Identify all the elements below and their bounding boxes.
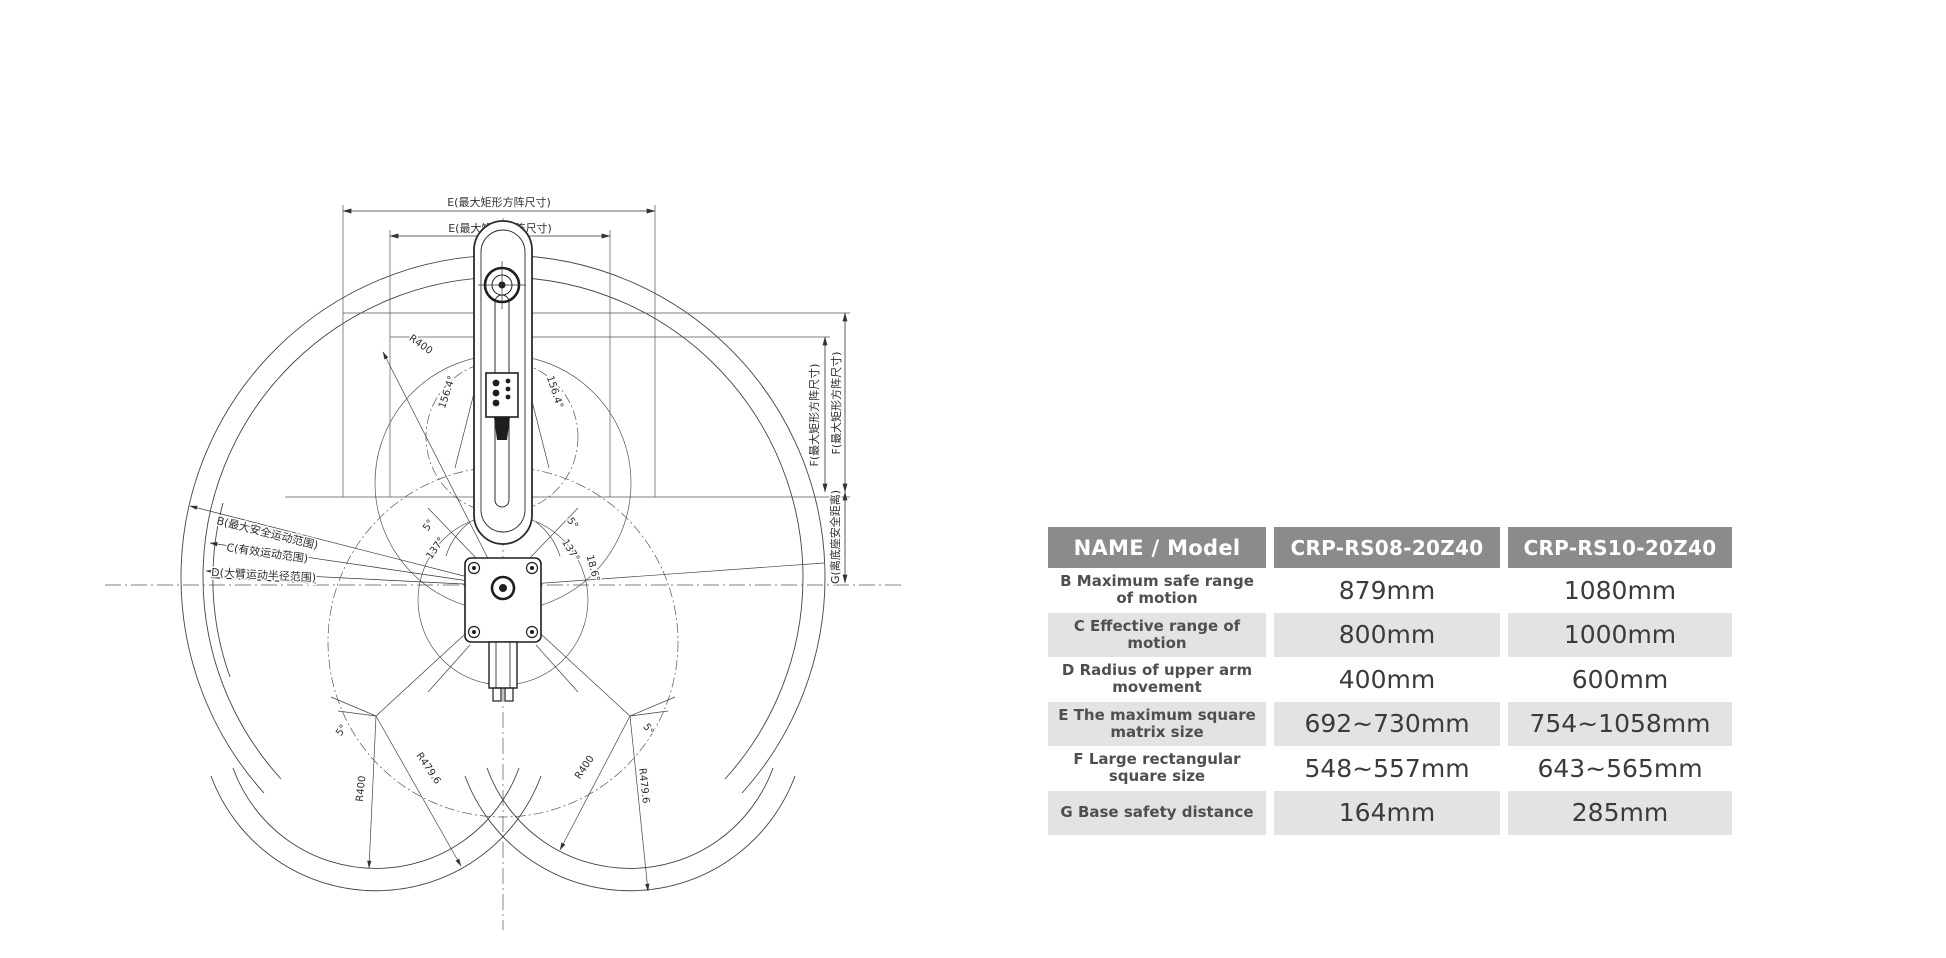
row-f-value1: 548~557mm bbox=[1274, 746, 1500, 791]
dimension-e-outer: E(最大矩形方阵尺寸) bbox=[343, 195, 655, 211]
row-c-value2: 1000mm bbox=[1508, 613, 1732, 658]
angle-left-5-label: 5° bbox=[421, 518, 437, 534]
lobe-right-outer-arc bbox=[465, 776, 795, 891]
row-f-value2: 643~565mm bbox=[1508, 746, 1732, 791]
angle-left-137-label: 137° bbox=[425, 536, 448, 562]
row-b-value2: 1080mm bbox=[1508, 568, 1732, 613]
lobe-right-inner-arc bbox=[487, 768, 773, 868]
row-e-value1: 692~730mm bbox=[1274, 702, 1500, 747]
angle-18-label: 18.6° bbox=[584, 554, 602, 583]
table-header-name: NAME / Model bbox=[1048, 527, 1266, 568]
d-range-label: D(大臂运动半径范围) bbox=[211, 565, 317, 584]
r400-top-label: R400 bbox=[407, 333, 435, 357]
lobe-right-r400-label: R400 bbox=[573, 754, 597, 782]
bottom-annotations: 5° R400 R479.6 5° R400 R479.6 bbox=[334, 722, 656, 804]
row-d-value2: 600mm bbox=[1508, 657, 1732, 702]
row-d-value1: 400mm bbox=[1274, 657, 1500, 702]
row-e-value2: 754~1058mm bbox=[1508, 702, 1732, 747]
row-b-value1: 879mm bbox=[1274, 568, 1500, 613]
table-header-model1: CRP-RS08-20Z40 bbox=[1274, 527, 1500, 568]
e-outer-label: E(最大矩形方阵尺寸) bbox=[447, 195, 551, 209]
row-e-name: E The maximum square matrix size bbox=[1048, 702, 1266, 747]
row-g-name: G Base safety distance bbox=[1048, 791, 1266, 836]
angle-right-156-label: 156.4° bbox=[544, 375, 565, 410]
page: E(最大矩形方阵尺寸) E(最大矩形方阵尺寸) F(最大矩形方阵尺寸) F(最大… bbox=[0, 0, 1946, 958]
row-d-name: D Radius of upper arm movement bbox=[1048, 657, 1266, 702]
lobe-left-r479-label: R479.6 bbox=[414, 751, 443, 787]
workspace-diagram: E(最大矩形方阵尺寸) E(最大矩形方阵尺寸) F(最大矩形方阵尺寸) F(最大… bbox=[0, 0, 1000, 958]
table-header-model2: CRP-RS10-20Z40 bbox=[1508, 527, 1732, 568]
angle-right-5-label: 5° bbox=[564, 516, 580, 532]
lobe-left-5-label: 5° bbox=[334, 723, 350, 739]
annotation-rays bbox=[376, 302, 824, 716]
lobe-left-outer-arc bbox=[211, 776, 541, 891]
angle-left-156-label: 156.4° bbox=[437, 375, 458, 410]
lobe-right-5-label: 5° bbox=[640, 722, 656, 738]
row-b-name: B Maximum safe range of motion bbox=[1048, 568, 1266, 613]
row-c-name: C Effective range of motion bbox=[1048, 613, 1266, 658]
f-inner-label: F(最大矩形方阵尺寸) bbox=[807, 364, 821, 467]
f-outer-label: F(最大矩形方阵尺寸) bbox=[829, 352, 843, 455]
dimension-g: G(离底座安全距离) bbox=[828, 490, 845, 584]
spec-table: NAME / Model CRP-RS08-20Z40 CRP-RS10-20Z… bbox=[1048, 527, 1732, 835]
row-c-value1: 800mm bbox=[1274, 613, 1500, 658]
robot-arm bbox=[465, 221, 541, 701]
lobe-left-r400-label: R400 bbox=[355, 775, 369, 802]
extension-lines bbox=[285, 205, 850, 497]
dimension-f-outer: F(最大矩形方阵尺寸) bbox=[829, 313, 845, 492]
angle-right-137-label: 137° bbox=[559, 538, 581, 564]
robot-base bbox=[465, 558, 541, 701]
row-g-value2: 285mm bbox=[1508, 791, 1732, 836]
row-g-value1: 164mm bbox=[1274, 791, 1500, 836]
dimension-f-inner: F(最大矩形方阵尺寸) bbox=[807, 337, 825, 492]
g-label: G(离底座安全距离) bbox=[828, 490, 842, 584]
lobe-left-inner-arc bbox=[233, 768, 519, 868]
row-f-name: F Large rectangular square size bbox=[1048, 746, 1266, 791]
